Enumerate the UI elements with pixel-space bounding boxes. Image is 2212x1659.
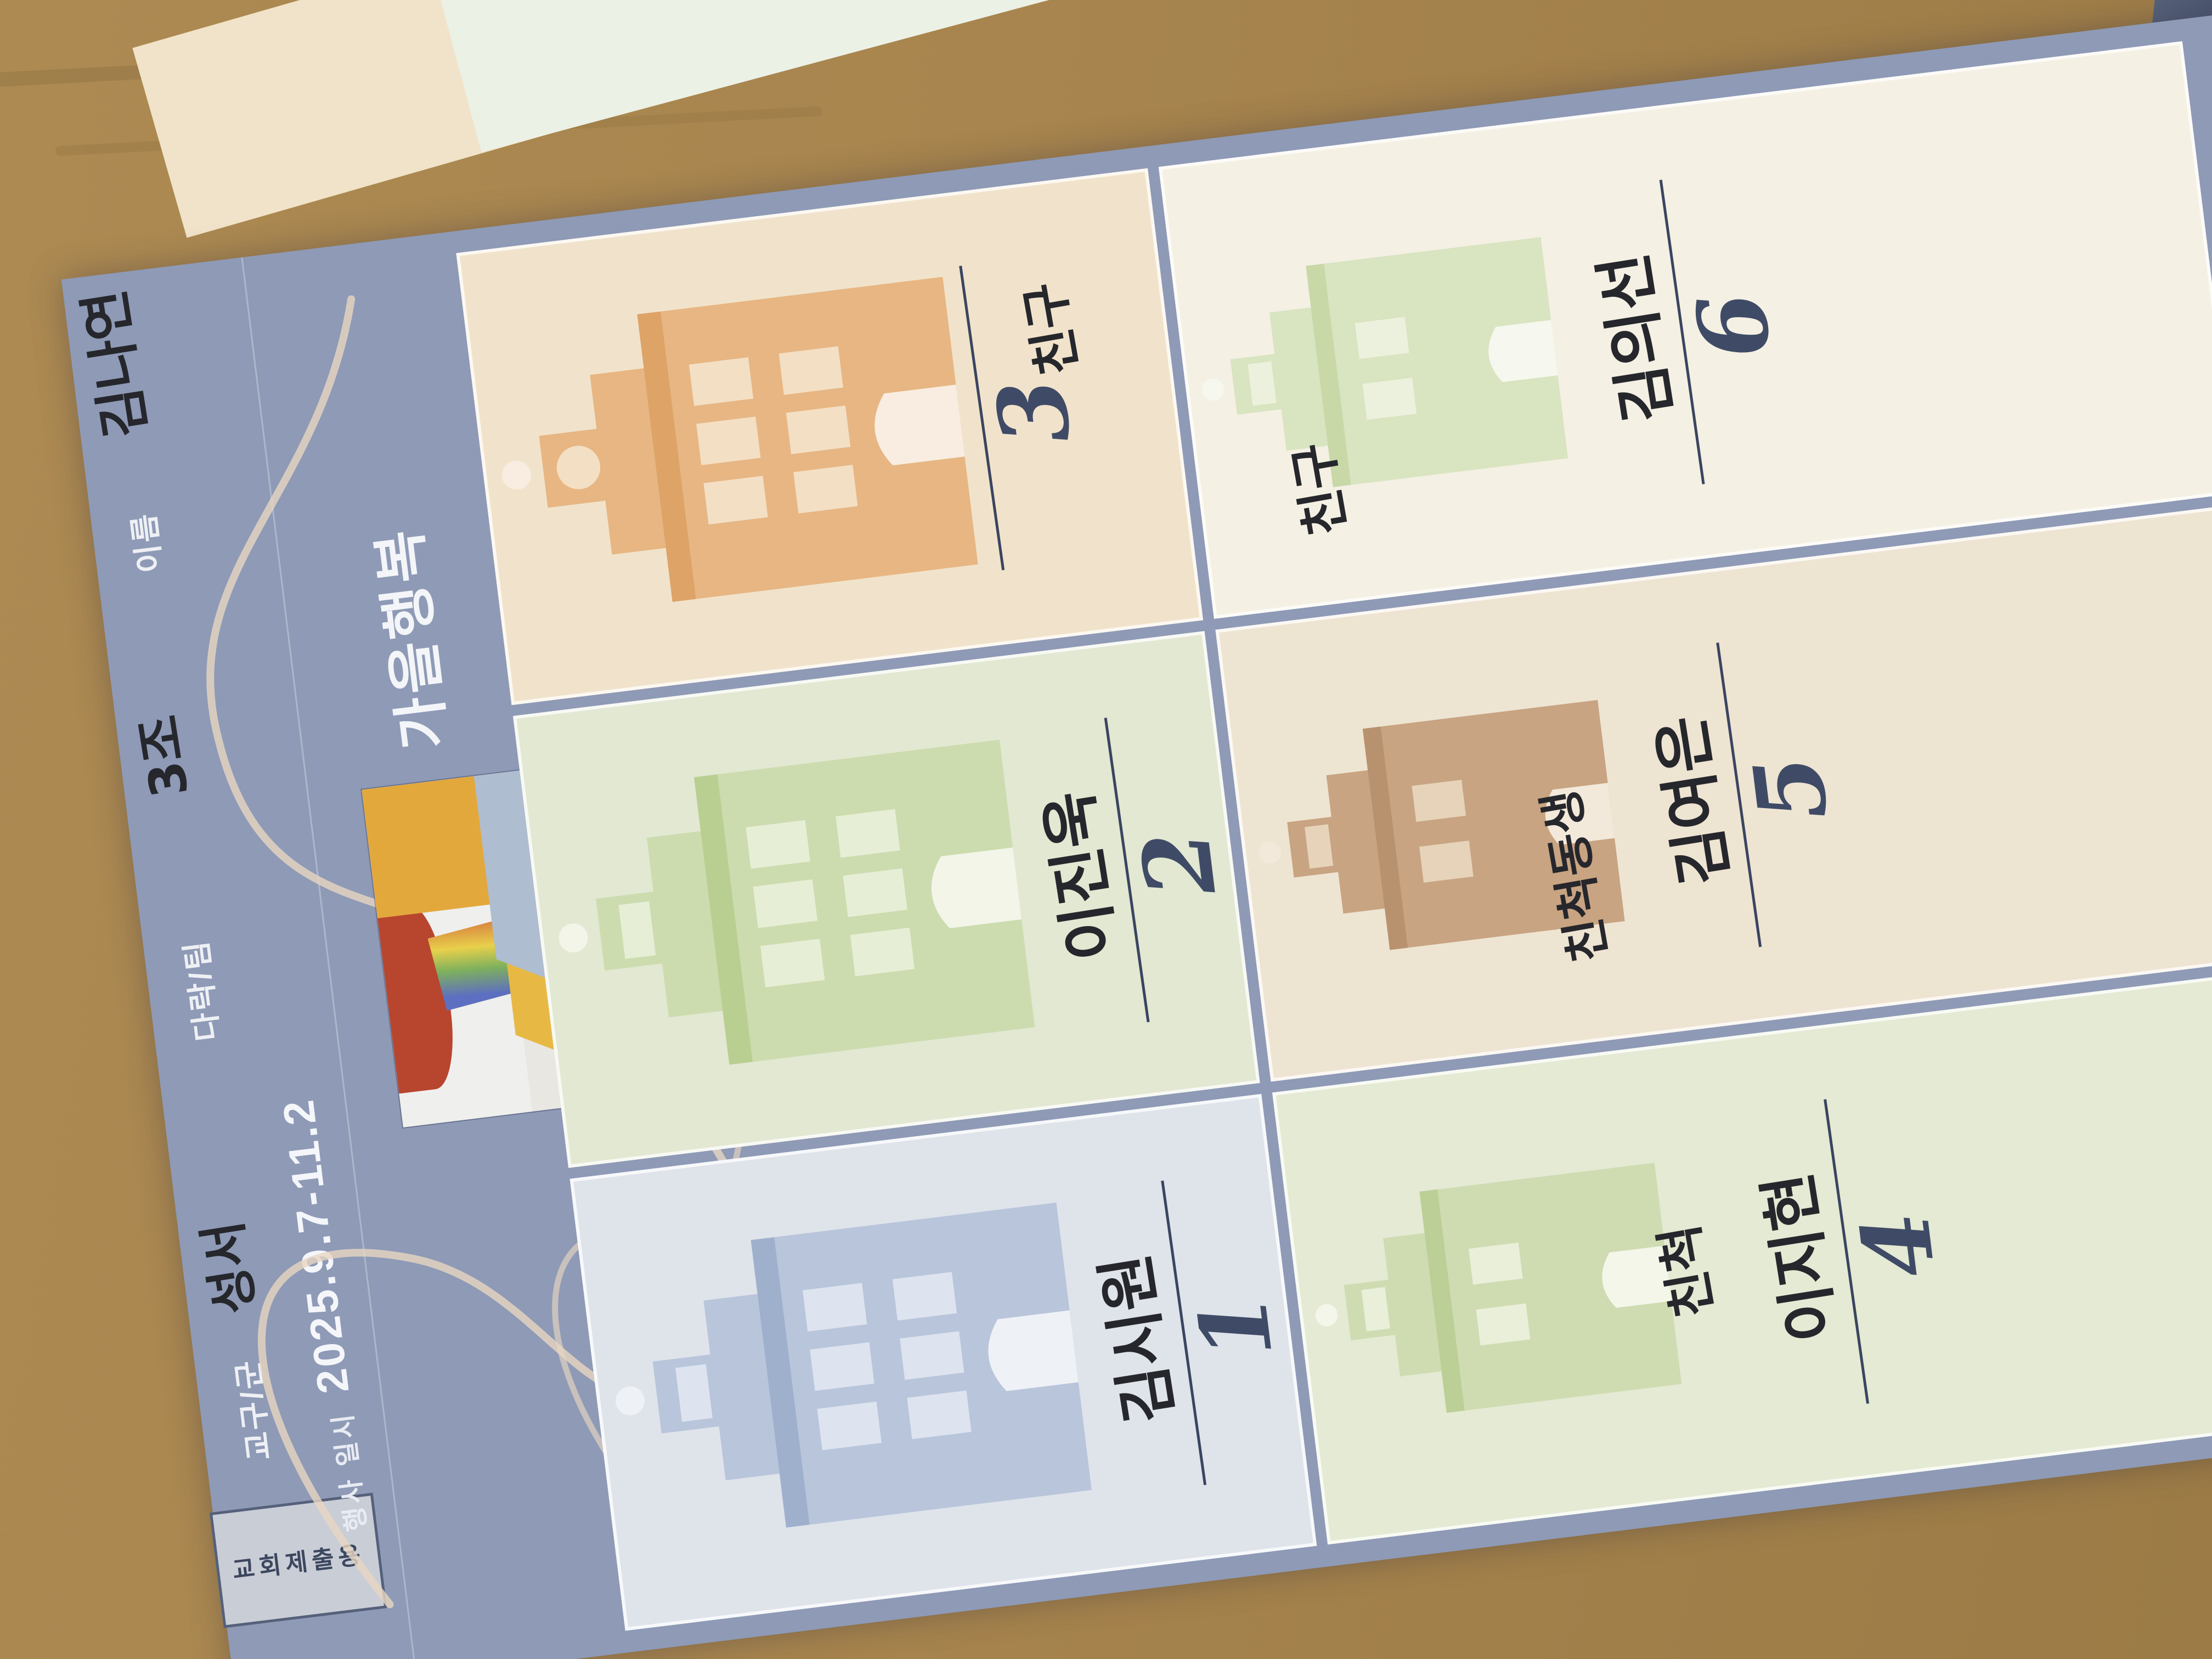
card-number: 5	[1741, 751, 1841, 826]
field-label-name: 이름	[119, 510, 171, 575]
card-name: 김여은	[1631, 710, 1745, 892]
invite-card-3: 친구 3	[456, 168, 1203, 706]
event-title: 가을행복	[352, 523, 461, 754]
handwritten-team: 3조	[118, 711, 203, 803]
building-illustration	[1178, 206, 1572, 534]
invite-card-1: 김시원 1	[570, 1094, 1317, 1631]
event-date-value: 2025.9.7-11.2	[273, 1096, 358, 1396]
handwritten-district: 성서	[182, 1217, 268, 1320]
event-date-label: 행사 일시	[328, 1409, 371, 1533]
card-name: 이진욱	[1019, 786, 1133, 967]
card-name: 김의선	[1574, 247, 1688, 429]
building-illustration	[471, 241, 983, 658]
card-relation: 친척	[1639, 1220, 1726, 1324]
card-number: 4	[1848, 1207, 1949, 1283]
building-illustration	[527, 704, 1040, 1121]
field-label-district: 교구/군	[223, 1356, 280, 1463]
card-number: 1	[1186, 1289, 1286, 1364]
photo-scene: 교회제출용 교구/군 성서 다락/팀 3조 이름 김나연 행사 일시 2025.…	[0, 0, 2212, 1659]
event-date-row: 행사 일시 2025.9.7-11.2	[273, 1096, 376, 1535]
submit-tab-label: 교회제출용	[230, 1535, 366, 1586]
card-name: 김시원	[1076, 1249, 1190, 1430]
invite-card-2: 이진욱 2	[513, 631, 1260, 1168]
field-label-team: 다락/팀	[172, 937, 228, 1044]
building-illustration	[584, 1166, 1097, 1583]
building-illustration	[1291, 1132, 1685, 1459]
underlying-paper	[439, 0, 1064, 152]
card-number: 2	[1128, 826, 1229, 901]
card-name: 이지현	[1739, 1167, 1853, 1348]
card-number: 3	[984, 374, 1084, 449]
form-paper: 교회제출용 교구/군 성서 다락/팀 3조 이름 김나연 행사 일시 2025.…	[61, 0, 2212, 1659]
handwritten-name: 김나연	[61, 285, 161, 444]
card-relation: 친구	[1003, 278, 1091, 382]
card-number: 6	[1684, 287, 1784, 363]
